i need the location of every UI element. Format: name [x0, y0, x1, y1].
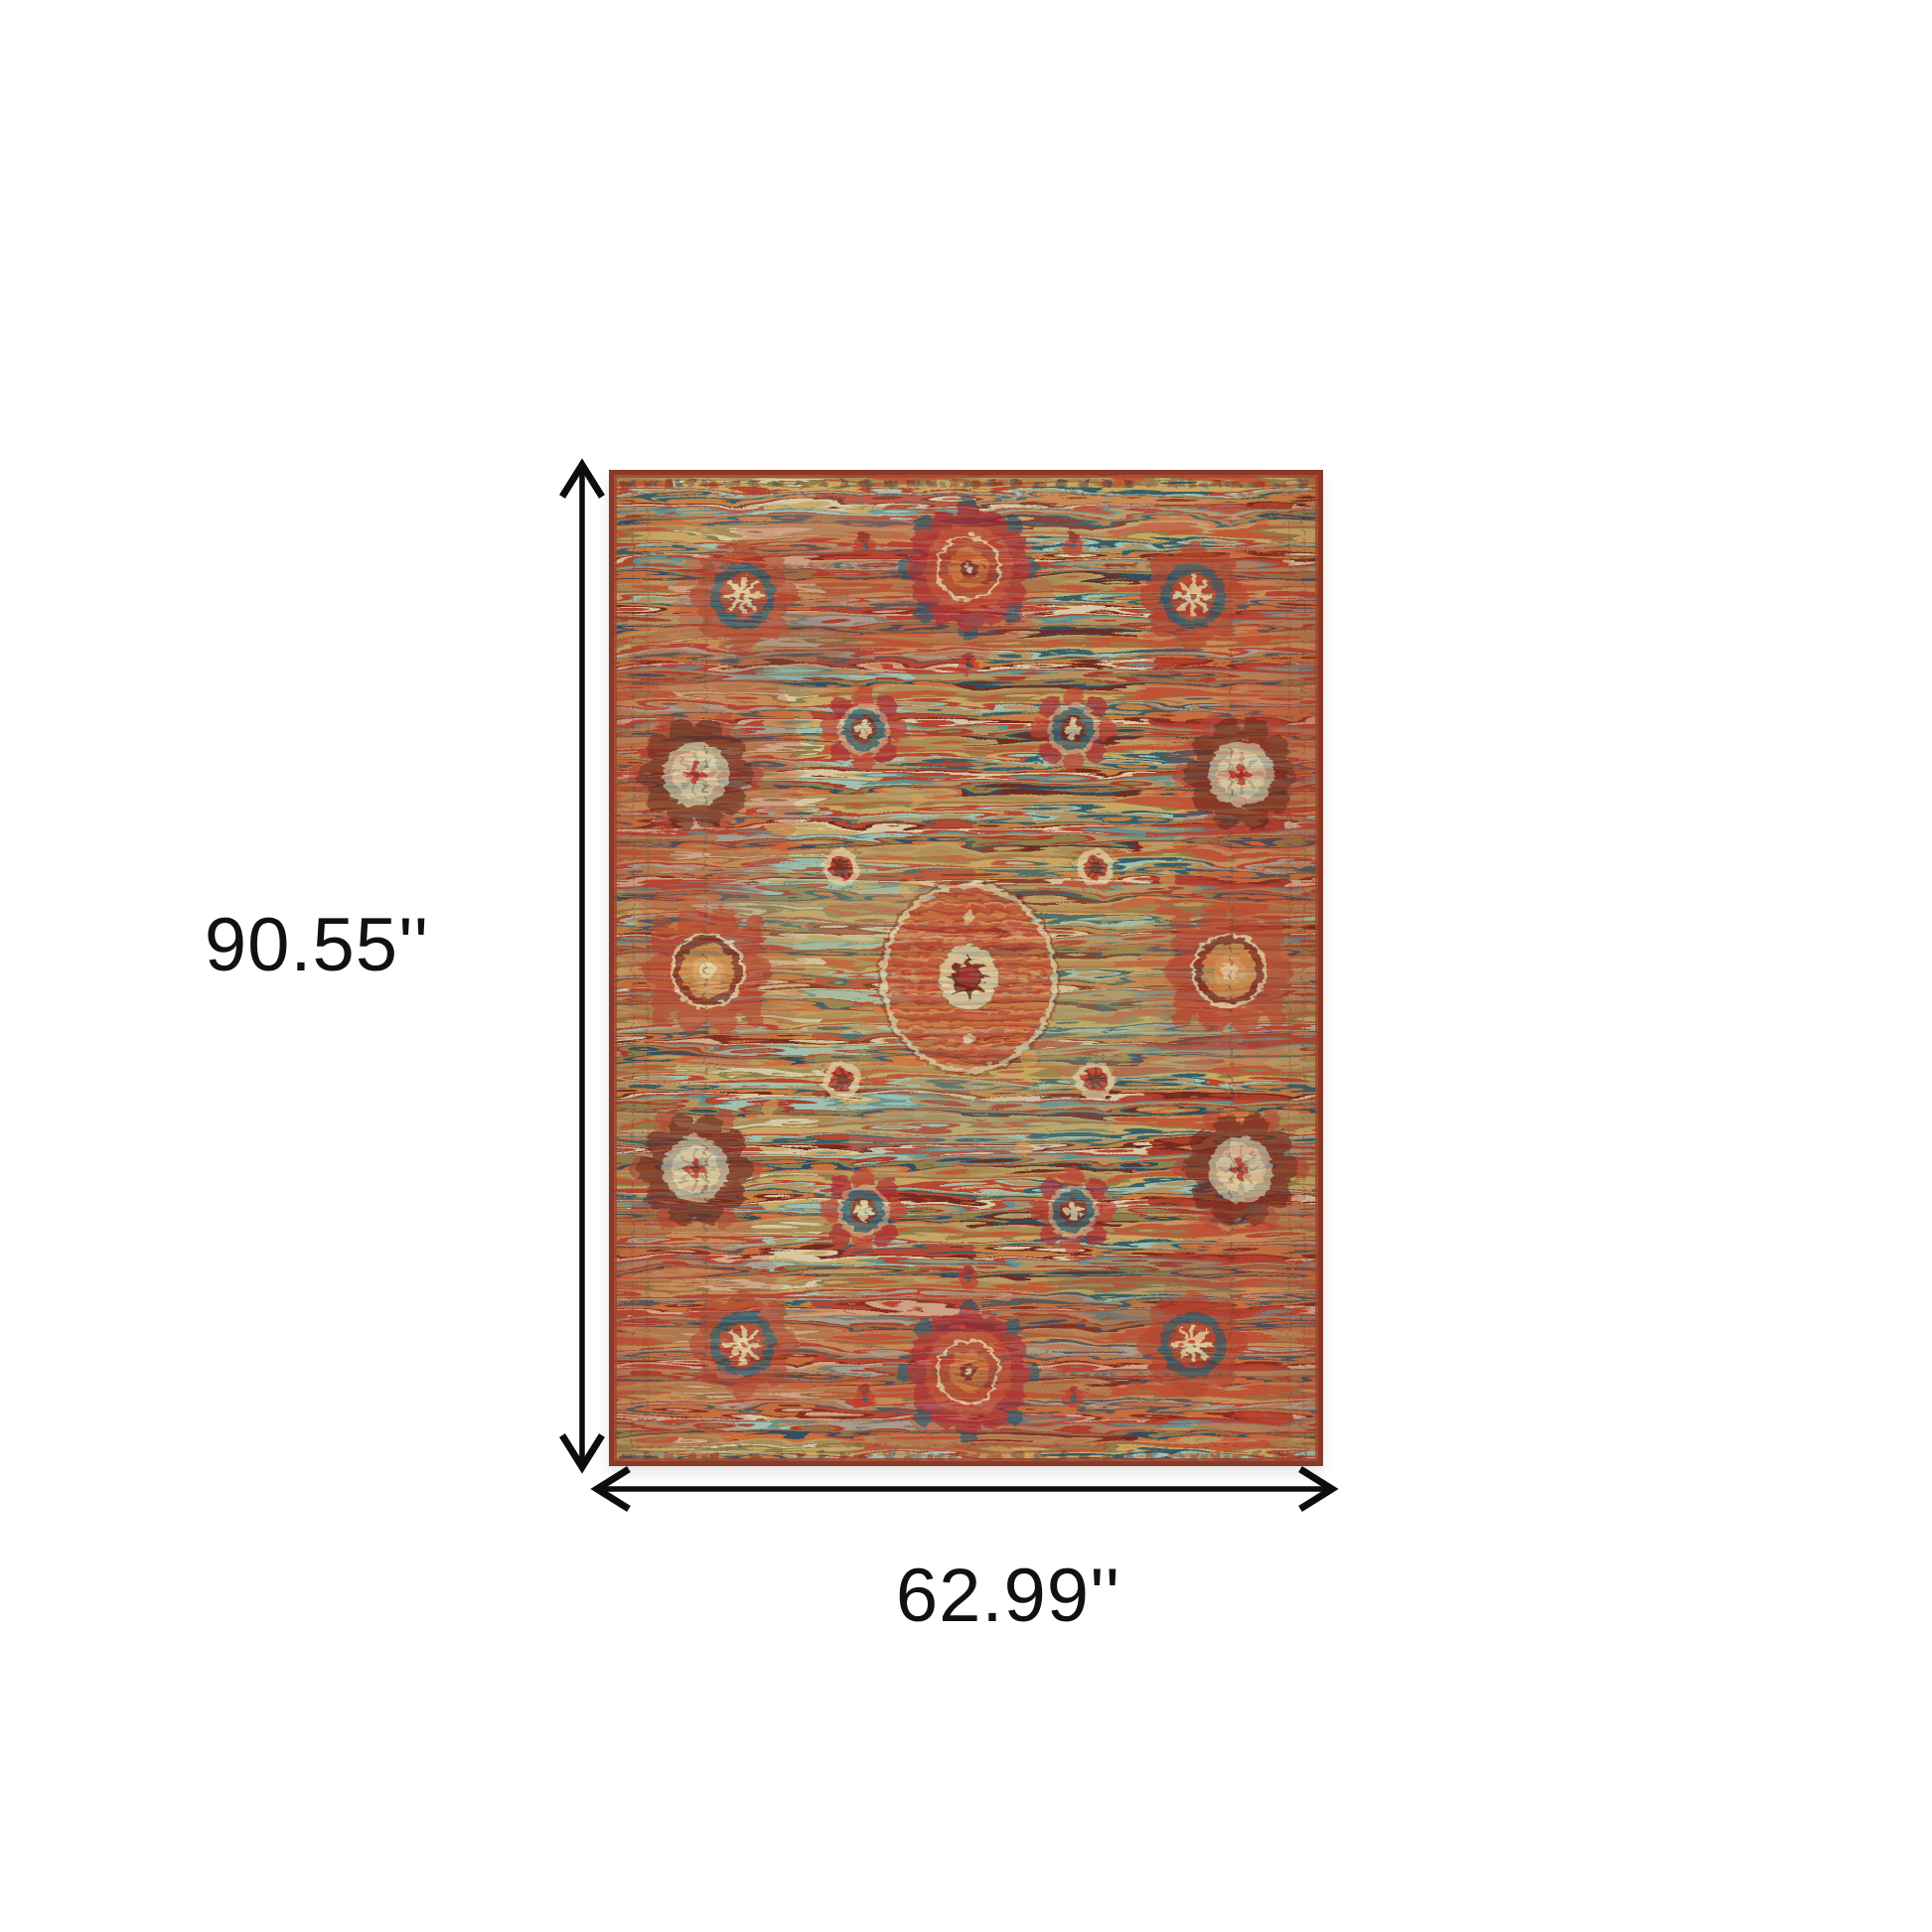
rug-graphic — [609, 470, 1323, 1466]
height-dimension-label: 90.55'' — [118, 902, 516, 988]
product-dimension-image: 90.55'' 62.99'' — [0, 0, 1932, 1932]
rug-image — [609, 470, 1323, 1466]
width-dimension-arrow — [588, 1462, 1343, 1518]
height-dimension-arrow — [556, 457, 608, 1480]
width-dimension-label: 62.99'' — [810, 1553, 1207, 1639]
